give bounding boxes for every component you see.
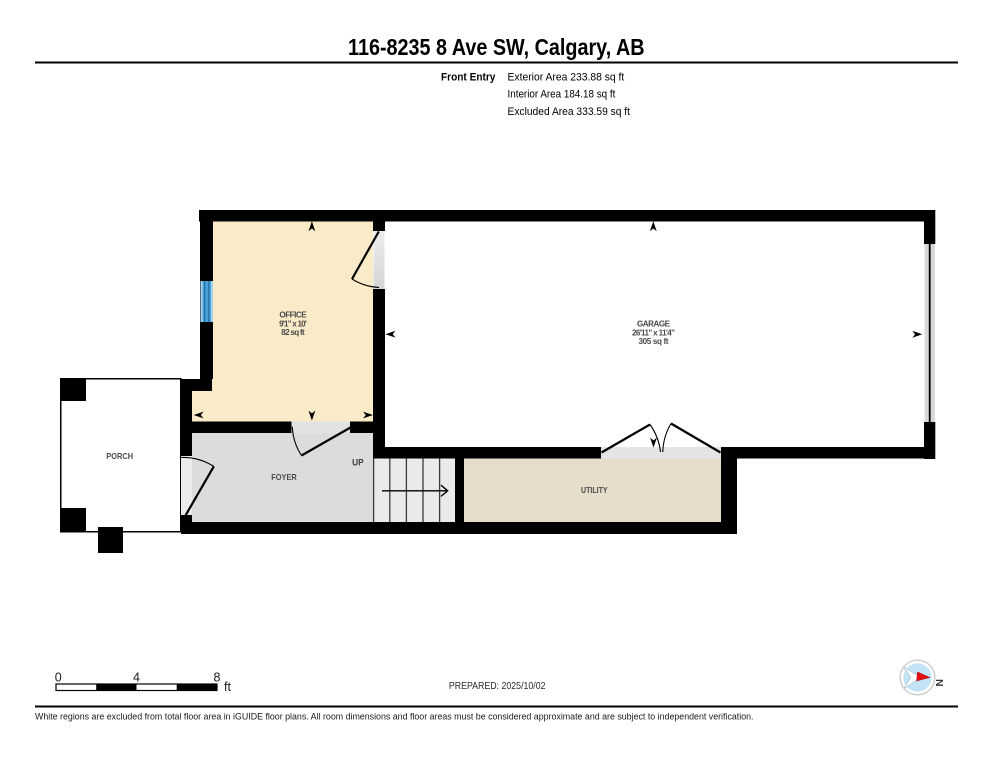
svg-text:OFFICE: OFFICE bbox=[279, 311, 307, 320]
svg-text:Excluded Area 333.59 sq ft: Excluded Area 333.59 sq ft bbox=[508, 106, 631, 118]
svg-text:116-8235 8 Ave SW, Calgary, AB: 116-8235 8 Ave SW, Calgary, AB bbox=[348, 34, 645, 60]
svg-text:Front Entry: Front Entry bbox=[441, 72, 496, 84]
svg-text:305 sq ft: 305 sq ft bbox=[639, 337, 669, 346]
svg-text:8: 8 bbox=[214, 670, 221, 684]
svg-text:UTILITY: UTILITY bbox=[581, 486, 608, 495]
svg-text:GARAGE: GARAGE bbox=[637, 320, 671, 329]
svg-text:ft: ft bbox=[224, 680, 231, 694]
svg-text:Exterior Area 233.88 sq ft: Exterior Area 233.88 sq ft bbox=[508, 72, 626, 84]
svg-text:White regions are excluded fro: White regions are excluded from total fl… bbox=[35, 712, 754, 722]
svg-text:PORCH: PORCH bbox=[106, 452, 133, 461]
svg-text:N: N bbox=[933, 679, 945, 687]
svg-text:4: 4 bbox=[133, 670, 140, 684]
svg-text:PREPARED: 2025/10/02: PREPARED: 2025/10/02 bbox=[449, 681, 546, 692]
svg-text:26'11" x 11'4": 26'11" x 11'4" bbox=[632, 328, 675, 337]
svg-text:0: 0 bbox=[55, 670, 62, 684]
svg-text:UP: UP bbox=[352, 457, 364, 467]
svg-text:82 sq ft: 82 sq ft bbox=[281, 328, 305, 337]
svg-text:FOYER: FOYER bbox=[271, 473, 297, 482]
svg-text:Interior Area 184.18 sq ft: Interior Area 184.18 sq ft bbox=[508, 89, 617, 101]
svg-text:9'1" x 10': 9'1" x 10' bbox=[279, 319, 307, 328]
